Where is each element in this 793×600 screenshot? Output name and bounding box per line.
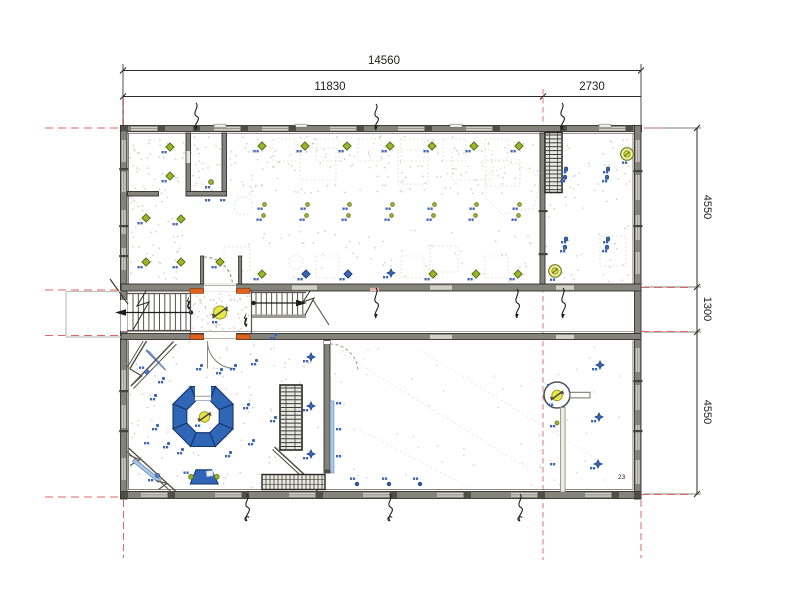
svg-text:1300: 1300 [701, 297, 713, 321]
svg-text:14560: 14560 [368, 55, 400, 67]
svg-text:4550: 4550 [701, 195, 713, 219]
svg-text:23: 23 [618, 474, 626, 481]
svg-text:2730: 2730 [579, 81, 605, 93]
svg-text:11830: 11830 [314, 81, 345, 93]
svg-text:4550: 4550 [701, 400, 713, 424]
